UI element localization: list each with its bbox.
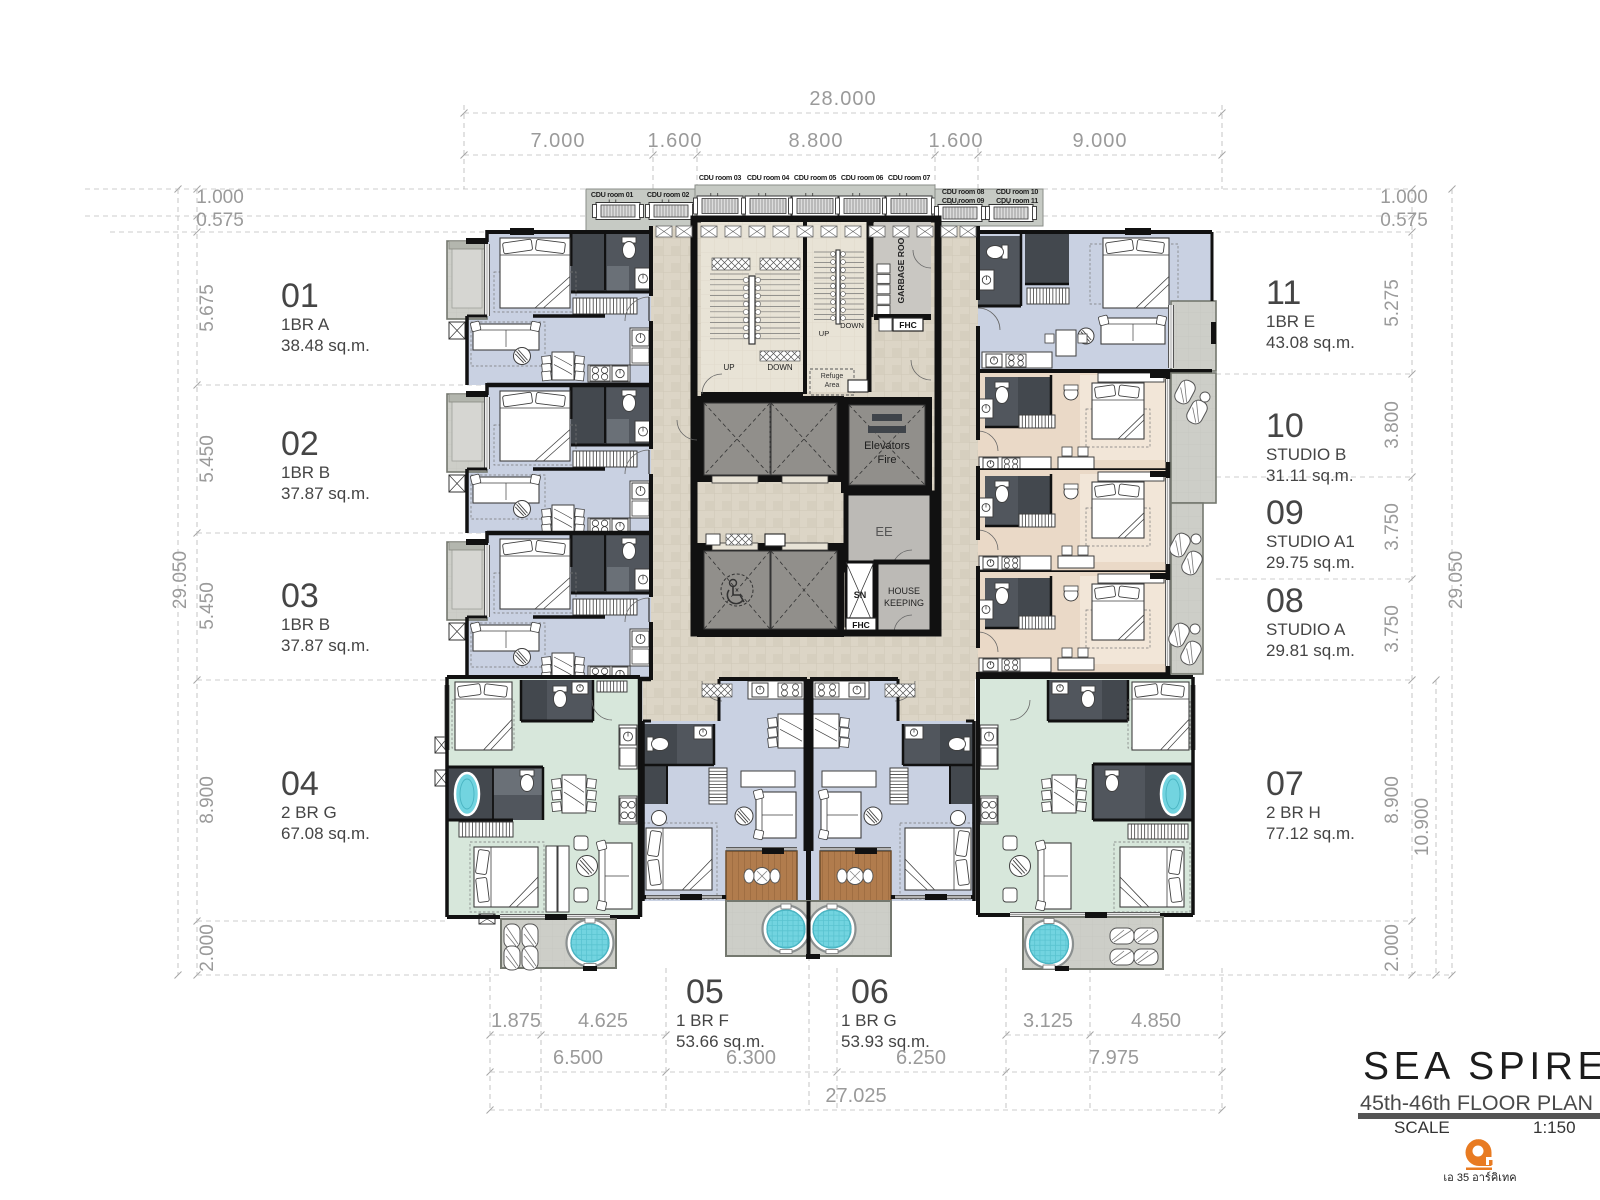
svg-text:2.000: 2.000 (1382, 924, 1403, 972)
svg-text:CDU room 08: CDU room 08 (942, 187, 985, 196)
svg-text:10.900: 10.900 (1412, 798, 1433, 856)
svg-text:UP: UP (723, 363, 734, 372)
svg-text:SN: SN (854, 590, 867, 600)
svg-text:45th-46th FLOOR PLAN: 45th-46th FLOOR PLAN (1360, 1091, 1593, 1115)
svg-text:1:150: 1:150 (1533, 1118, 1576, 1137)
svg-text:8.900: 8.900 (197, 776, 218, 824)
svg-text:67.08 sq.m.: 67.08 sq.m. (281, 824, 370, 843)
svg-text:3.800: 3.800 (1382, 401, 1403, 449)
svg-text:01: 01 (281, 277, 319, 315)
svg-text:CDU room 06: CDU room 06 (841, 173, 884, 182)
svg-text:DOWN: DOWN (840, 321, 864, 330)
svg-text:29.050: 29.050 (1446, 551, 1467, 609)
svg-text:02: 02 (281, 425, 319, 463)
svg-text:CDU room 03: CDU room 03 (699, 173, 742, 182)
svg-text:GARBAGE ROOM: GARBAGE ROOM (896, 230, 906, 303)
svg-text:DOWN: DOWN (767, 363, 793, 372)
svg-text:8.900: 8.900 (1382, 776, 1403, 824)
svg-text:UP: UP (819, 329, 829, 338)
svg-text:1 BR F: 1 BR F (676, 1011, 729, 1030)
svg-text:37.87 sq.m.: 37.87 sq.m. (281, 636, 370, 655)
svg-text:Refuge: Refuge (821, 373, 844, 380)
svg-text:3.125: 3.125 (1023, 1010, 1073, 1032)
svg-text:27.025: 27.025 (825, 1085, 886, 1107)
svg-text:10: 10 (1266, 407, 1304, 445)
svg-text:77.12 sq.m.: 77.12 sq.m. (1266, 824, 1355, 843)
svg-text:4.850: 4.850 (1131, 1010, 1181, 1032)
svg-text:06: 06 (851, 973, 889, 1011)
svg-text:29.75 sq.m.: 29.75 sq.m. (1266, 553, 1355, 572)
svg-text:CDU room 05: CDU room 05 (794, 173, 837, 182)
svg-text:3.750: 3.750 (1382, 605, 1403, 653)
svg-text:53.93 sq.m.: 53.93 sq.m. (841, 1032, 930, 1051)
svg-text:29.81 sq.m.: 29.81 sq.m. (1266, 641, 1355, 660)
svg-text:STUDIO A: STUDIO A (1266, 620, 1346, 639)
svg-text:7.975: 7.975 (1089, 1047, 1139, 1069)
svg-text:53.66 sq.m.: 53.66 sq.m. (676, 1032, 765, 1051)
svg-text:SEA SPIRE: SEA SPIRE (1363, 1045, 1600, 1088)
svg-text:STUDIO B: STUDIO B (1266, 445, 1346, 464)
svg-text:03: 03 (281, 577, 319, 615)
svg-text:08: 08 (1266, 582, 1304, 620)
svg-text:1BR A: 1BR A (281, 315, 330, 334)
svg-text:5.675: 5.675 (197, 284, 218, 332)
svg-text:2.000: 2.000 (197, 924, 218, 972)
svg-text:CDU room 09: CDU room 09 (942, 196, 985, 205)
svg-text:1BR B: 1BR B (281, 463, 330, 482)
svg-text:1.600: 1.600 (928, 130, 983, 152)
svg-text:6.500: 6.500 (553, 1047, 603, 1069)
svg-text:29.050: 29.050 (170, 551, 191, 609)
svg-text:1.600: 1.600 (647, 130, 702, 152)
svg-text:43.08 sq.m.: 43.08 sq.m. (1266, 333, 1355, 352)
svg-text:31.11 sq.m.: 31.11 sq.m. (1266, 466, 1354, 485)
svg-text:1.875: 1.875 (491, 1010, 541, 1032)
svg-text:FHC: FHC (852, 620, 869, 630)
svg-text:2 BR H: 2 BR H (1266, 803, 1321, 822)
svg-text:Fire: Fire (878, 454, 897, 466)
svg-text:CDU room 04: CDU room 04 (747, 173, 790, 182)
svg-text:38.48 sq.m.: 38.48 sq.m. (281, 336, 370, 355)
svg-text:37.87 sq.m.: 37.87 sq.m. (281, 484, 370, 503)
svg-text:KEEPING: KEEPING (884, 598, 924, 608)
svg-text:04: 04 (281, 765, 319, 803)
svg-text:07: 07 (1266, 765, 1304, 803)
svg-text:2 BR G: 2 BR G (281, 803, 337, 822)
svg-text:Elevators: Elevators (864, 440, 910, 452)
svg-text:1.000: 1.000 (196, 187, 244, 208)
svg-text:3.750: 3.750 (1382, 503, 1403, 551)
svg-text:Area: Area (825, 382, 840, 389)
svg-text:1BR E: 1BR E (1266, 312, 1315, 331)
svg-text:11: 11 (1266, 274, 1301, 312)
svg-text:05: 05 (686, 973, 724, 1011)
svg-text:1 BR G: 1 BR G (841, 1011, 897, 1030)
svg-text:0.575: 0.575 (196, 210, 244, 231)
svg-text:CDU room 11: CDU room 11 (996, 196, 1038, 205)
svg-text:CDU room 01: CDU room 01 (591, 190, 634, 199)
svg-text:เอ 35 อาร์คิเทค: เอ 35 อาร์คิเทค (1443, 1171, 1516, 1184)
svg-text:5.275: 5.275 (1382, 279, 1403, 327)
svg-text:0.575: 0.575 (1380, 210, 1428, 231)
svg-text:CDU room 07: CDU room 07 (888, 173, 931, 182)
svg-text:1BR B: 1BR B (281, 615, 330, 634)
svg-text:CDU room 02: CDU room 02 (647, 190, 690, 199)
svg-text:CDU room 10: CDU room 10 (996, 187, 1039, 196)
svg-text:EE: EE (875, 524, 893, 539)
svg-text:7.000: 7.000 (530, 130, 585, 152)
svg-text:FHC: FHC (899, 320, 916, 330)
svg-text:4.625: 4.625 (578, 1010, 628, 1032)
svg-text:HOUSE: HOUSE (888, 586, 920, 596)
svg-text:8.800: 8.800 (788, 130, 843, 152)
svg-text:9.000: 9.000 (1072, 130, 1127, 152)
svg-text:28.000: 28.000 (809, 88, 876, 110)
svg-text:5.450: 5.450 (197, 582, 218, 630)
svg-text:1.000: 1.000 (1380, 187, 1428, 208)
svg-text:SCALE: SCALE (1394, 1118, 1450, 1137)
svg-text:STUDIO A1: STUDIO A1 (1266, 532, 1355, 551)
svg-text:5.450: 5.450 (197, 435, 218, 483)
svg-text:09: 09 (1266, 494, 1304, 532)
